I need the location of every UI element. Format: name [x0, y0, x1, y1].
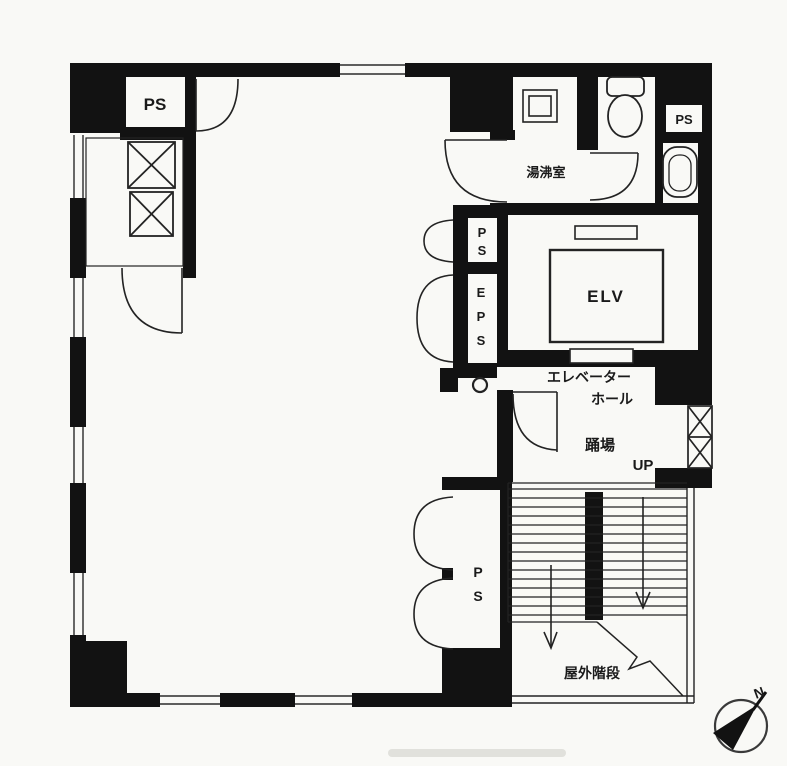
label-ps-toilet: PS: [675, 112, 693, 127]
label-outdoor-stairs: 屋外階段: [564, 665, 620, 681]
label-elevator-hall-2: ホール: [591, 391, 633, 407]
label-up: UP: [633, 457, 654, 474]
wall-bottom-a: [70, 693, 160, 707]
label-letter: S: [477, 333, 486, 348]
label-elevator: ELV: [587, 287, 625, 306]
wall-left-b: [70, 337, 86, 427]
wc-tank: [607, 77, 644, 96]
label-eps-shaft: E P S: [477, 285, 486, 348]
window-top: [340, 63, 405, 77]
toilet-bowl: [607, 77, 644, 137]
label-kitchenette: 湯沸室: [526, 165, 565, 180]
elevator-door-gap: [570, 349, 633, 363]
label-elevator-hall-1: エレベーター: [547, 369, 631, 385]
label-letter: P: [478, 225, 487, 240]
wall-corner-top-left: [70, 63, 126, 133]
label-ps-closet: PS: [144, 95, 167, 114]
floor-plan-canvas: PS 湯沸室 PS ELV P S E P S エレベーター ホール 踊場 UP…: [0, 0, 787, 766]
wc-bowl: [608, 95, 642, 137]
wall-kitchen-toilet-separator: [577, 75, 598, 150]
floor-plan-page: PS 湯沸室 PS ELV P S E P S エレベーター ホール 踊場 UP…: [0, 0, 787, 766]
wall-kitchenette-left-bit: [490, 130, 515, 140]
wall-shaft-bottom-right: [183, 262, 196, 278]
label-letter: E: [477, 285, 486, 300]
wall-bottom-b: [220, 693, 295, 707]
wall-eps-bottom: [453, 363, 497, 378]
wall-ps-closet-right: [185, 63, 196, 133]
label-letter: P: [477, 309, 486, 324]
wall-under-wet-rooms: [490, 203, 712, 215]
label-letter: P: [473, 564, 482, 580]
wall-ps-eps-divider: [453, 262, 497, 274]
wall-left-c: [70, 483, 86, 573]
label-landing: 踊場: [585, 437, 615, 454]
wall-below-xbox: [655, 468, 712, 488]
wall-hall-left-block: [440, 368, 458, 392]
wall-ps-eps-top: [453, 205, 508, 218]
wall-ps-eps-left: [453, 205, 468, 375]
wall-stair-divider: [585, 492, 603, 620]
wall-ps-shaft-right: [500, 477, 512, 657]
scan-smudge: [388, 749, 566, 757]
label-letter: S: [478, 243, 487, 258]
wall-shaft-right: [183, 140, 196, 266]
wall-hall-stub: [497, 390, 513, 482]
label-letter: S: [473, 588, 482, 604]
wall-kitchenette-top-block: [450, 63, 513, 132]
duct-shaft-xbox-right: [688, 406, 712, 468]
wall-hall-right-mass: [655, 363, 712, 405]
wall-toilet-basin-strip: [655, 143, 663, 203]
wall-left-a: [70, 198, 86, 278]
